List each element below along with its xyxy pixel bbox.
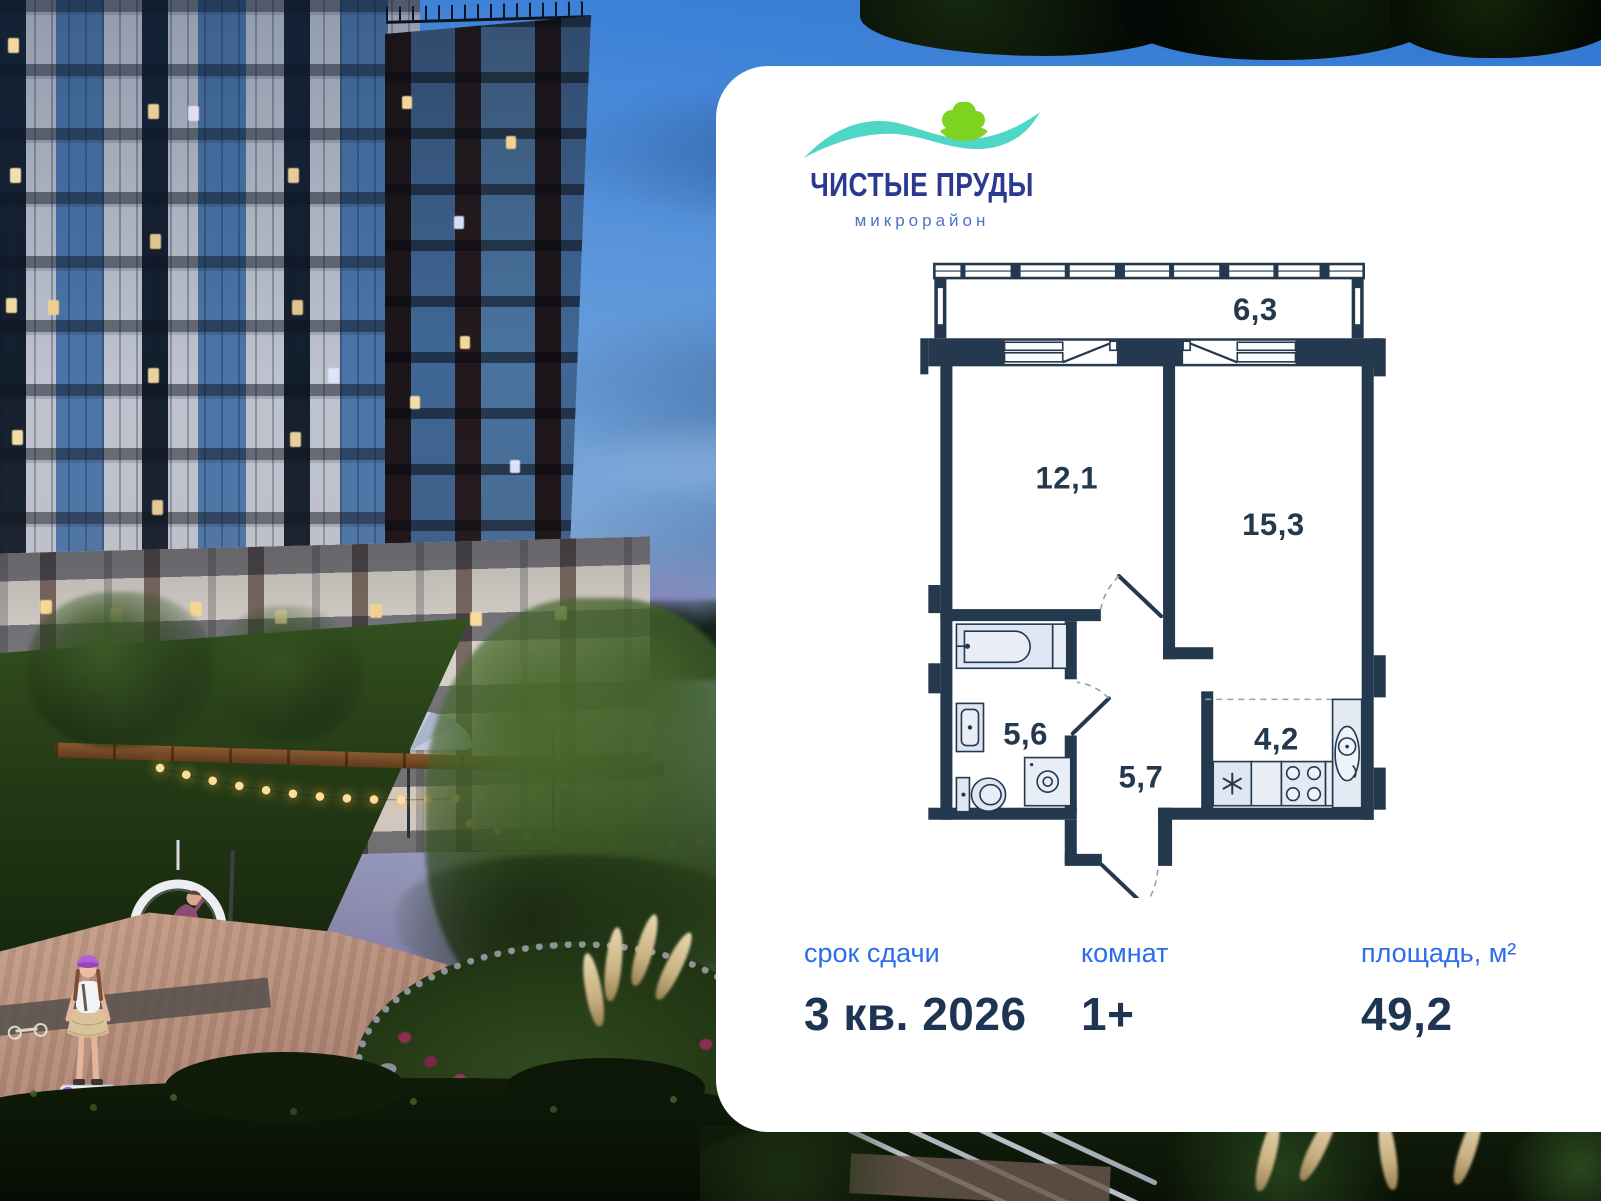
red-flowers xyxy=(398,1031,412,1043)
bush xyxy=(700,1126,940,1201)
garden-strip-bottom xyxy=(700,1126,1601,1201)
balcony-side-window xyxy=(938,288,943,324)
logo: ЧИСТЫЕ ПРУДЫ микрорайон xyxy=(772,102,1072,231)
balcony-side-window xyxy=(1355,288,1360,324)
deadline-label: срок сдачи xyxy=(804,938,1027,969)
tree-canopy-top xyxy=(700,0,1601,70)
bathtub xyxy=(956,624,1066,668)
fridge xyxy=(1213,762,1251,806)
kitchen-counter xyxy=(1251,762,1281,806)
stove xyxy=(1281,762,1325,806)
kitchen-counter-sink xyxy=(1333,699,1362,807)
washing-machine xyxy=(1025,758,1071,806)
living-room-area-label: 15,3 xyxy=(1242,507,1305,542)
hallway-area-label: 5,7 xyxy=(1119,760,1164,795)
balcony-area-label: 6,3 xyxy=(1233,292,1278,327)
pampas-grass xyxy=(1449,1126,1487,1187)
apartment-details: срок сдачи 3 кв. 2026 комнат 1+ площадь,… xyxy=(716,938,1601,1098)
rooms-value: 1+ xyxy=(1081,987,1168,1041)
real-estate-banner: Подъезд 3 xyxy=(0,0,1601,1201)
kitchen-counter xyxy=(1326,762,1333,806)
logo-subtitle: микрорайон xyxy=(772,211,1072,231)
lit-windows-lower xyxy=(40,600,52,614)
balcony-glazing xyxy=(934,264,1363,278)
area-column: площадь, м² 49,2 xyxy=(1361,938,1516,1041)
pampas-grass xyxy=(579,952,608,1028)
kitchen-area-label: 4,2 xyxy=(1254,722,1299,757)
foreground-bushes xyxy=(0,1078,755,1201)
lit-windows-tower xyxy=(402,96,412,109)
toilet xyxy=(956,778,1005,812)
tree xyxy=(28,592,213,747)
door-leaves xyxy=(1073,576,1161,898)
logo-title: ЧИСТЫЕ ПРУДЫ xyxy=(802,166,1042,204)
bush xyxy=(1500,1126,1601,1201)
apartment-card[interactable]: ЧИСТЫЕ ПРУДЫ микрорайон xyxy=(716,66,1601,1132)
bush-highlights xyxy=(30,1090,37,1097)
deadline-column: срок сдачи 3 кв. 2026 xyxy=(804,938,1027,1041)
tree xyxy=(212,606,362,741)
deadline-value: 3 кв. 2026 xyxy=(804,987,1027,1041)
area-value: 49,2 xyxy=(1361,987,1516,1041)
logo-wave-tree-icon xyxy=(802,102,1042,164)
sink xyxy=(956,703,983,751)
bathroom-area-label: 5,6 xyxy=(1003,717,1048,752)
rooms-label: комнат xyxy=(1081,938,1168,969)
area-label: площадь, м² xyxy=(1361,938,1516,969)
floor-plan: 6,3 12,1 15,3 5,6 5,7 4,2 xyxy=(904,256,1386,898)
bedroom-area-label: 12,1 xyxy=(1036,461,1099,496)
foliage xyxy=(1390,0,1601,58)
rooms-column: комнат 1+ xyxy=(1081,938,1168,1041)
lit-windows-warm xyxy=(8,38,19,53)
